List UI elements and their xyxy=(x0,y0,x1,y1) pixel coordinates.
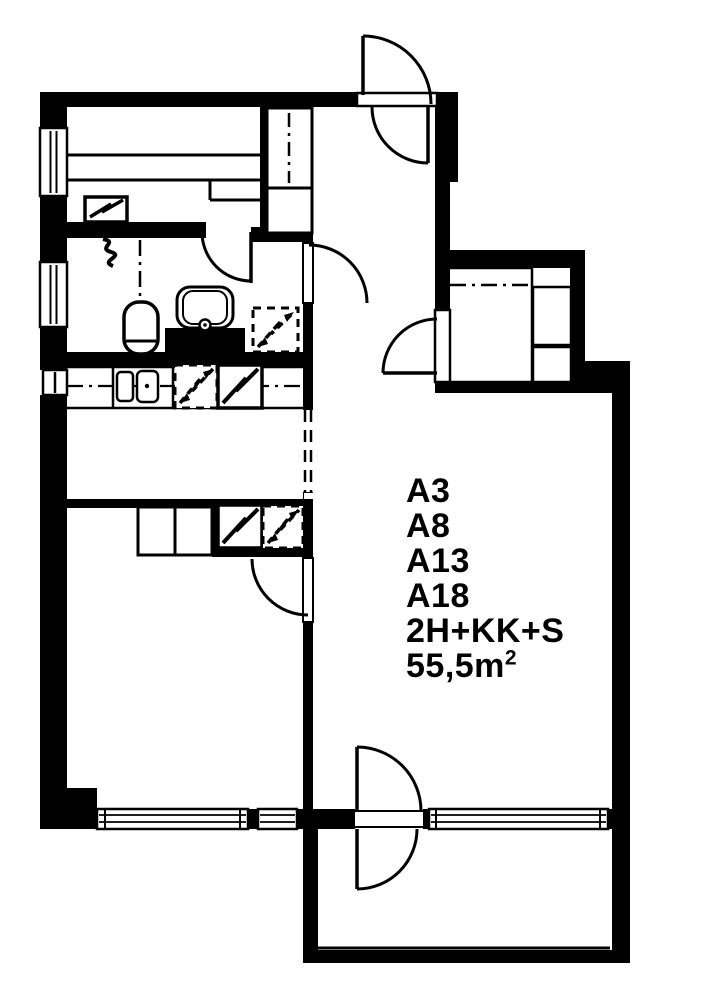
apartment-type-label: 2H+KK+S xyxy=(406,614,564,649)
apartment-area-label: 55,5m2 xyxy=(406,649,564,684)
unit-label: A8 xyxy=(406,509,564,544)
window xyxy=(429,809,608,829)
unit-label: A18 xyxy=(406,579,564,614)
stove-icon xyxy=(218,365,262,408)
walk-in-closet-door xyxy=(383,310,450,382)
window-small xyxy=(43,370,67,395)
drain-squiggle-icon xyxy=(103,239,115,266)
fridge-icon xyxy=(218,505,262,548)
dishwasher-reservation-icon xyxy=(175,365,217,408)
window xyxy=(40,128,67,196)
walk-in-closet xyxy=(447,268,571,382)
appliance-reservation-icon xyxy=(263,506,303,548)
bedroom-wardrobe xyxy=(138,507,212,555)
toilet-icon xyxy=(124,302,158,354)
unit-label: A13 xyxy=(406,544,564,579)
hall-closet xyxy=(267,108,312,233)
area-superscript: 2 xyxy=(505,647,517,670)
window xyxy=(40,262,67,327)
sauna-door xyxy=(202,222,252,283)
floor-plan: A3 A8 A13 A18 2H+KK+S 55,5m2 xyxy=(0,0,708,1000)
window xyxy=(97,809,248,829)
entrance-door xyxy=(357,36,437,163)
doors xyxy=(202,36,450,889)
area-value: 55,5m xyxy=(406,647,505,685)
kitchen-sink-icon xyxy=(117,371,158,402)
apartment-label: A3 A8 A13 A18 2H+KK+S 55,5m2 xyxy=(406,474,564,684)
washbasin-icon xyxy=(177,287,233,331)
kitchen-open-boundary xyxy=(305,410,311,492)
bathroom-door xyxy=(303,243,367,303)
washing-machine-reservation-icon xyxy=(253,308,298,352)
window xyxy=(258,809,297,829)
sauna-benches xyxy=(67,155,260,200)
bedroom-door xyxy=(252,558,313,622)
sauna-stove-icon xyxy=(85,197,127,222)
unit-label: A3 xyxy=(406,474,564,509)
floor-plan-drawing xyxy=(0,0,708,1000)
balcony-door xyxy=(355,747,423,889)
